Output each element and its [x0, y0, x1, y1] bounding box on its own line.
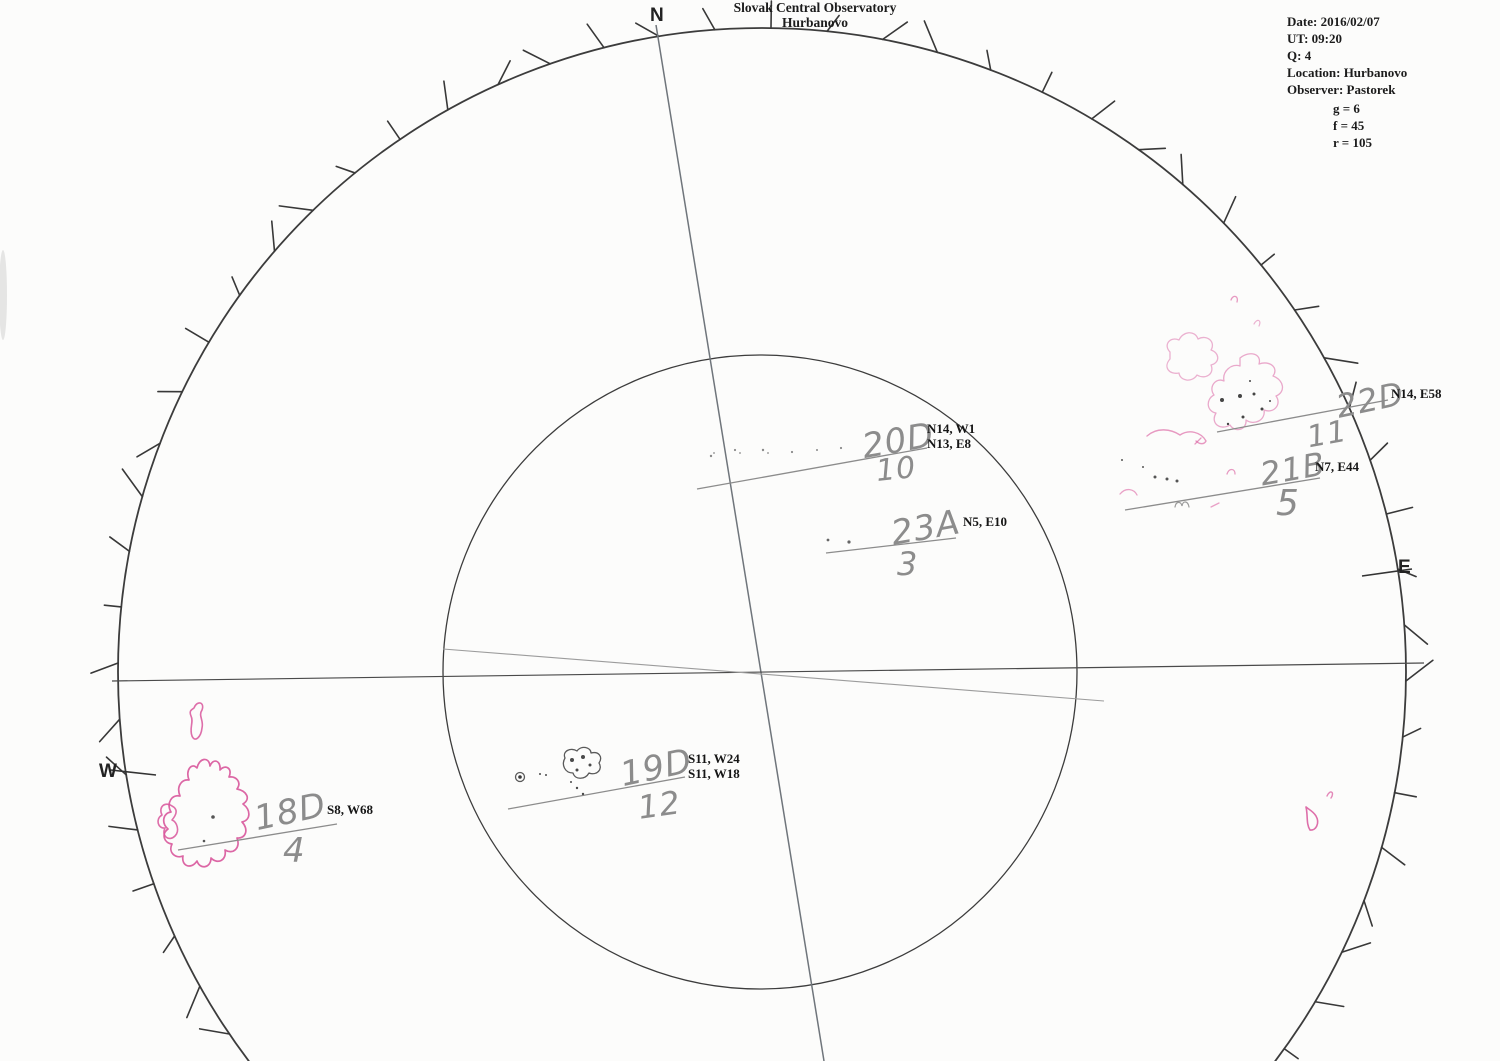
- sunspot-20D: [762, 449, 764, 451]
- limb-tick: [279, 206, 313, 210]
- limb-tick: [104, 605, 121, 607]
- sunspot-19D: [576, 769, 579, 772]
- sunspot-19D: [545, 774, 547, 776]
- group-23A-spot-count: 3: [897, 545, 918, 583]
- metadata-date: Date: 2016/02/07: [1287, 13, 1407, 30]
- facula-outline: [1227, 470, 1235, 475]
- sunspot-22D: [1238, 394, 1242, 398]
- sunspot-20D: [791, 451, 793, 453]
- limb-tick: [272, 221, 275, 251]
- limb-tick: [91, 663, 118, 673]
- limb-tick: [1181, 154, 1183, 184]
- west-label: W: [99, 761, 117, 783]
- group-20D-coordinates: N14, W1: [927, 421, 975, 436]
- sunspot-19D: [581, 755, 585, 759]
- limb-tick: [186, 328, 209, 342]
- limb-tick: [100, 719, 120, 741]
- sunspot-22D: [1249, 380, 1251, 382]
- limb-tick: [1403, 728, 1421, 737]
- west-mark-bar: [111, 770, 156, 775]
- facula-outline: [1327, 792, 1332, 798]
- sunspot-penumbra-19D: [563, 747, 600, 778]
- sunspot-20D: [710, 455, 712, 457]
- limb-tick: [1404, 625, 1427, 644]
- facula-outline: [1254, 320, 1260, 326]
- sunspot-umbra-19D: [518, 775, 522, 779]
- north-label: N: [650, 5, 664, 27]
- sunspot-20D: [816, 449, 818, 451]
- limb-tick: [1315, 1002, 1344, 1007]
- stat-relative-number: r = 105: [1333, 134, 1372, 151]
- limb-tick: [987, 50, 991, 70]
- sunspot-18D: [203, 840, 206, 843]
- sunspot-22D: [1253, 393, 1256, 396]
- limb-tick: [232, 277, 240, 295]
- limb-tick: [1042, 72, 1052, 92]
- metadata-quality: Q: 4: [1287, 47, 1407, 64]
- limb-tick: [133, 884, 154, 891]
- facula-outline: [1306, 807, 1318, 830]
- sunspot-19D: [582, 793, 584, 795]
- sunspot-19D: [589, 764, 592, 767]
- central-meridian-line: [656, 25, 824, 1061]
- pencil-mark: [1175, 502, 1189, 507]
- group-23A-coordinates: N5, E10: [963, 514, 1007, 529]
- sunspot-19D: [539, 773, 541, 775]
- sunspot-22D: [1261, 408, 1264, 411]
- sunspot-20D: [739, 452, 741, 454]
- solar-limb-circle: [118, 28, 1406, 1061]
- metadata-ut: UT: 09:20: [1287, 30, 1407, 47]
- sunspot-drawing-sheet: Slovak Central Observatory Hurbanovo Dat…: [0, 0, 1500, 1061]
- group-19D-coordinates: S11, W24: [688, 751, 740, 766]
- metadata-observer: Observer: Pastorek: [1287, 81, 1407, 98]
- facula-outline: [1167, 333, 1218, 380]
- sunspot-22D: [1242, 416, 1245, 419]
- limb-tick: [1295, 306, 1319, 310]
- sunspot-23A: [847, 540, 850, 543]
- sunspot-18D: [211, 815, 215, 819]
- sunspot-statistics: g = 6 f = 45 r = 105: [1333, 100, 1372, 151]
- limb-tick: [1382, 847, 1405, 864]
- group-20D-coordinates: N13, E8: [927, 436, 971, 451]
- group-20D-spot-count: 10: [874, 450, 918, 489]
- sunspot-21B: [1176, 480, 1179, 483]
- observatory-title: Slovak Central Observatory Hurbanovo: [700, 0, 930, 30]
- limb-tick: [122, 469, 142, 497]
- limb-tick: [1284, 1049, 1298, 1059]
- facula-outline: [1211, 503, 1219, 507]
- limb-tick: [1224, 197, 1236, 223]
- sunspot-21B: [1121, 459, 1123, 461]
- limb-tick: [187, 986, 200, 1017]
- sunspot-19D: [570, 758, 574, 762]
- group-21B-coordinates: N7, E44: [1315, 459, 1359, 474]
- limb-tick: [1324, 358, 1358, 363]
- sunspot-21B: [1154, 476, 1157, 479]
- metadata-location: Location: Hurbanovo: [1287, 64, 1407, 81]
- limb-tick: [163, 936, 174, 952]
- stat-groups: g = 6: [1333, 100, 1372, 117]
- limb-tick: [1386, 507, 1412, 514]
- sunspot-21B: [1142, 466, 1144, 468]
- facula-outline: [1208, 354, 1282, 430]
- scan-artifact: [0, 250, 7, 340]
- sunspot-19D: [570, 781, 572, 783]
- limb-tick: [1092, 101, 1115, 119]
- limb-tick: [200, 1029, 230, 1034]
- limb-tick: [444, 81, 448, 110]
- horizontal-diameter-line: [112, 663, 1424, 681]
- limb-tick: [1139, 148, 1166, 149]
- group-22D-coordinates: N14, E58: [1391, 386, 1442, 401]
- sunspot-20D: [840, 447, 842, 449]
- limb-tick: [336, 166, 355, 173]
- solar-disk-drawing: [0, 0, 1500, 1061]
- limb-tick: [1261, 254, 1274, 265]
- group-21B-spot-count: 5: [1276, 483, 1300, 524]
- group-19D-spot-count: 12: [636, 783, 684, 827]
- limb-tick: [1370, 443, 1387, 460]
- group-18D-spot-count: 4: [283, 831, 306, 871]
- sunspot-19D: [576, 787, 578, 789]
- facula-outline: [1120, 490, 1137, 495]
- limb-tick: [1395, 793, 1417, 797]
- sunspot-22D: [1220, 398, 1224, 402]
- sunspot-20D: [713, 452, 715, 454]
- observation-metadata: Date: 2016/02/07 UT: 09:20 Q: 4 Location…: [1287, 13, 1407, 98]
- east-label: E: [1398, 557, 1411, 579]
- facula-outline: [158, 804, 178, 838]
- sunspot-21B: [1166, 478, 1169, 481]
- limb-tick: [110, 537, 130, 551]
- limb-tick: [109, 826, 138, 830]
- limb-tick: [523, 50, 550, 64]
- facula-outline: [190, 703, 202, 739]
- sunspot-22D: [1269, 400, 1271, 402]
- sunspot-23A: [827, 539, 830, 542]
- group-19D-coordinates: S11, W18: [688, 766, 740, 781]
- limb-tick: [1364, 901, 1372, 926]
- limb-tick: [388, 121, 400, 139]
- limb-tick: [587, 24, 604, 48]
- stat-spots: f = 45: [1333, 117, 1372, 134]
- sunspot-20D: [767, 452, 769, 454]
- sunspot-20D: [734, 449, 736, 451]
- group-18D-coordinates: S8, W68: [327, 802, 373, 817]
- sunspot-22D: [1227, 423, 1229, 425]
- facula-outline: [1231, 296, 1237, 302]
